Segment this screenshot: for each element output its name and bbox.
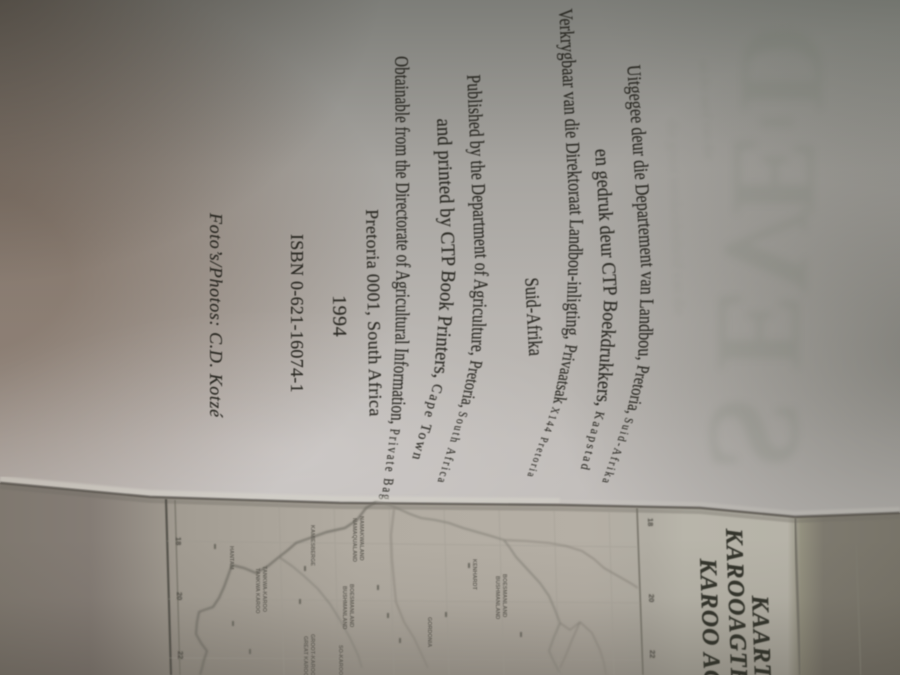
svg-text:GROOT-KAROO: GROOT-KAROO bbox=[309, 634, 315, 675]
svg-text:GORDONIA: GORDONIA bbox=[426, 617, 432, 647]
svg-text:KENHARDT: KENHARDT bbox=[471, 559, 477, 591]
svg-text:18: 18 bbox=[646, 518, 655, 526]
svg-text:20: 20 bbox=[175, 592, 184, 600]
svg-text:GREAT KAROO: GREAT KAROO bbox=[302, 636, 308, 675]
svg-text:22: 22 bbox=[648, 650, 657, 658]
svg-text:SO-KAROO: SO-KAROO bbox=[337, 645, 343, 675]
svg-text:TANKWA KAROO: TANKWA KAROO bbox=[254, 568, 260, 614]
svg-text:20: 20 bbox=[647, 594, 656, 602]
svg-text:NAMAQUALAND: NAMAQUALAND bbox=[351, 518, 357, 562]
svg-text:HANTAM: HANTAM bbox=[228, 546, 234, 570]
svg-text:NAMAKWALAND: NAMAKWALAND bbox=[358, 516, 364, 561]
svg-text:TANKWA-KAROO: TANKWA-KAROO bbox=[261, 566, 267, 613]
svg-text:BOESMANLAND: BOESMANLAND bbox=[348, 584, 354, 627]
svg-text:22: 22 bbox=[176, 651, 185, 659]
svg-text:BUSHMANLAND: BUSHMANLAND bbox=[341, 586, 347, 629]
svg-text:18: 18 bbox=[174, 537, 183, 545]
svg-text:KAMIESBERGE: KAMIESBERGE bbox=[309, 525, 315, 566]
svg-text:BOESMANLAND: BOESMANLAND bbox=[501, 574, 507, 617]
svg-text:BUSHMANLAND: BUSHMANLAND bbox=[494, 576, 500, 619]
